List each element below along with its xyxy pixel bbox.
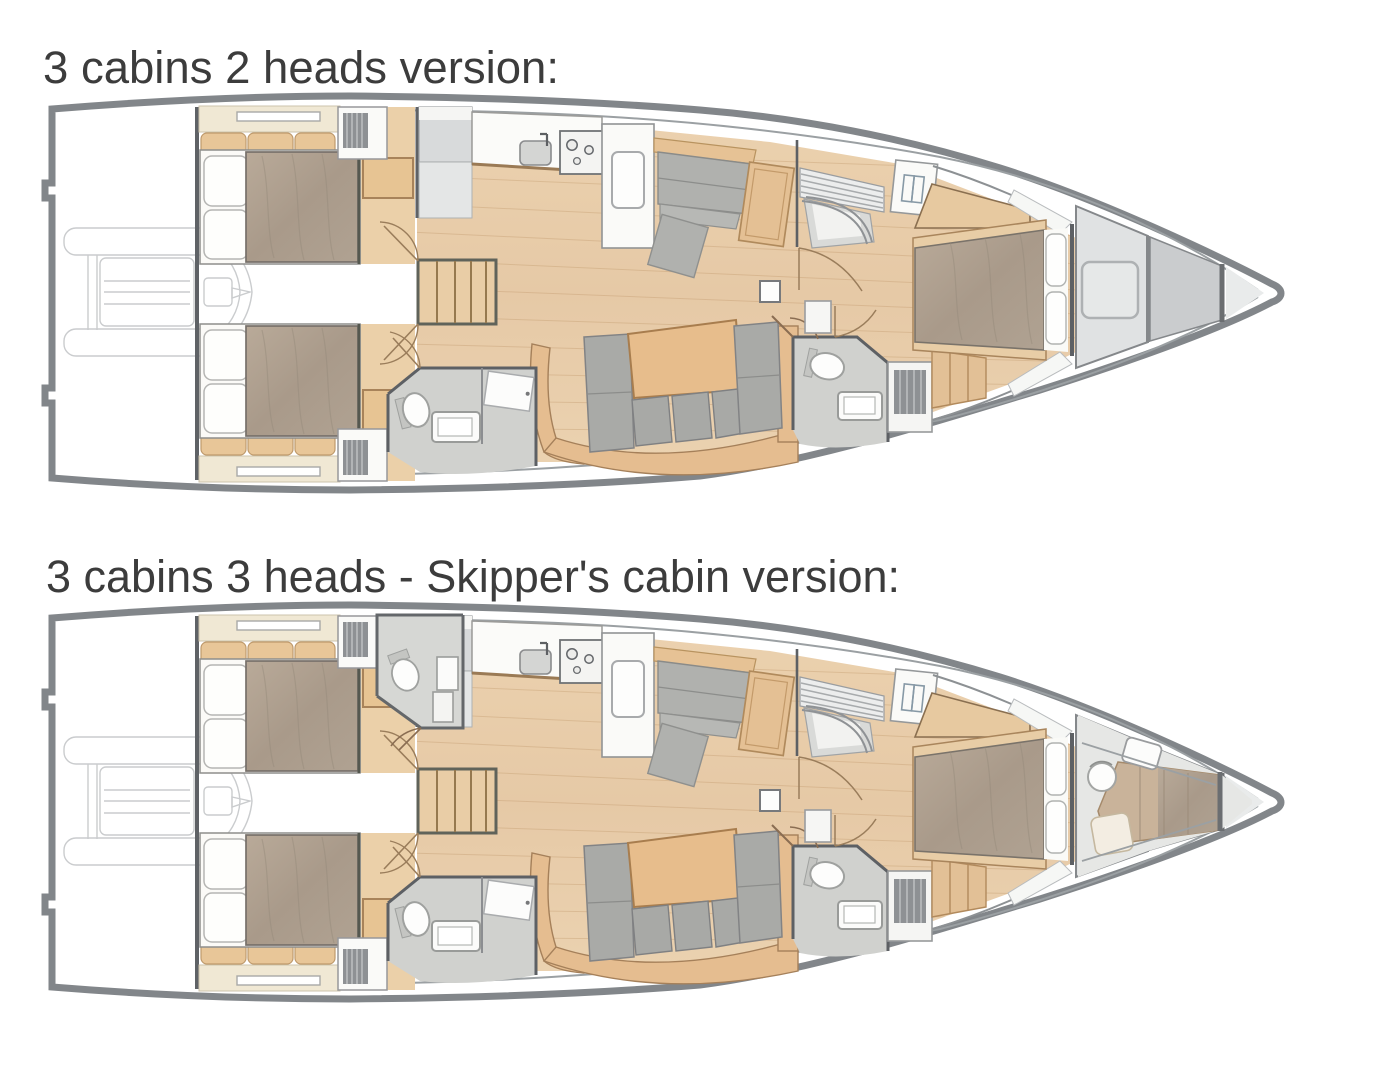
svg-text:3 cabins 3 heads - Skipper's c: 3 cabins 3 heads - Skipper's cabin versi…: [46, 551, 900, 602]
svg-text:3 cabins 2 heads version:: 3 cabins 2 heads version:: [43, 42, 559, 93]
